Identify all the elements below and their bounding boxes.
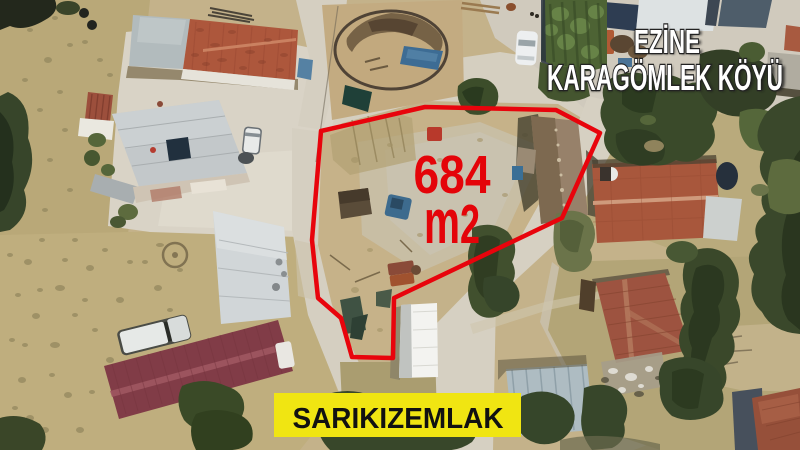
svg-text:EZİNE: EZİNE	[634, 23, 700, 60]
svg-text:m2: m2	[424, 188, 480, 257]
svg-text:SARIKIZEMLAK: SARIKIZEMLAK	[293, 403, 504, 435]
svg-text:KARAGÖMLEK KÖYÜ: KARAGÖMLEK KÖYÜ	[547, 57, 783, 98]
